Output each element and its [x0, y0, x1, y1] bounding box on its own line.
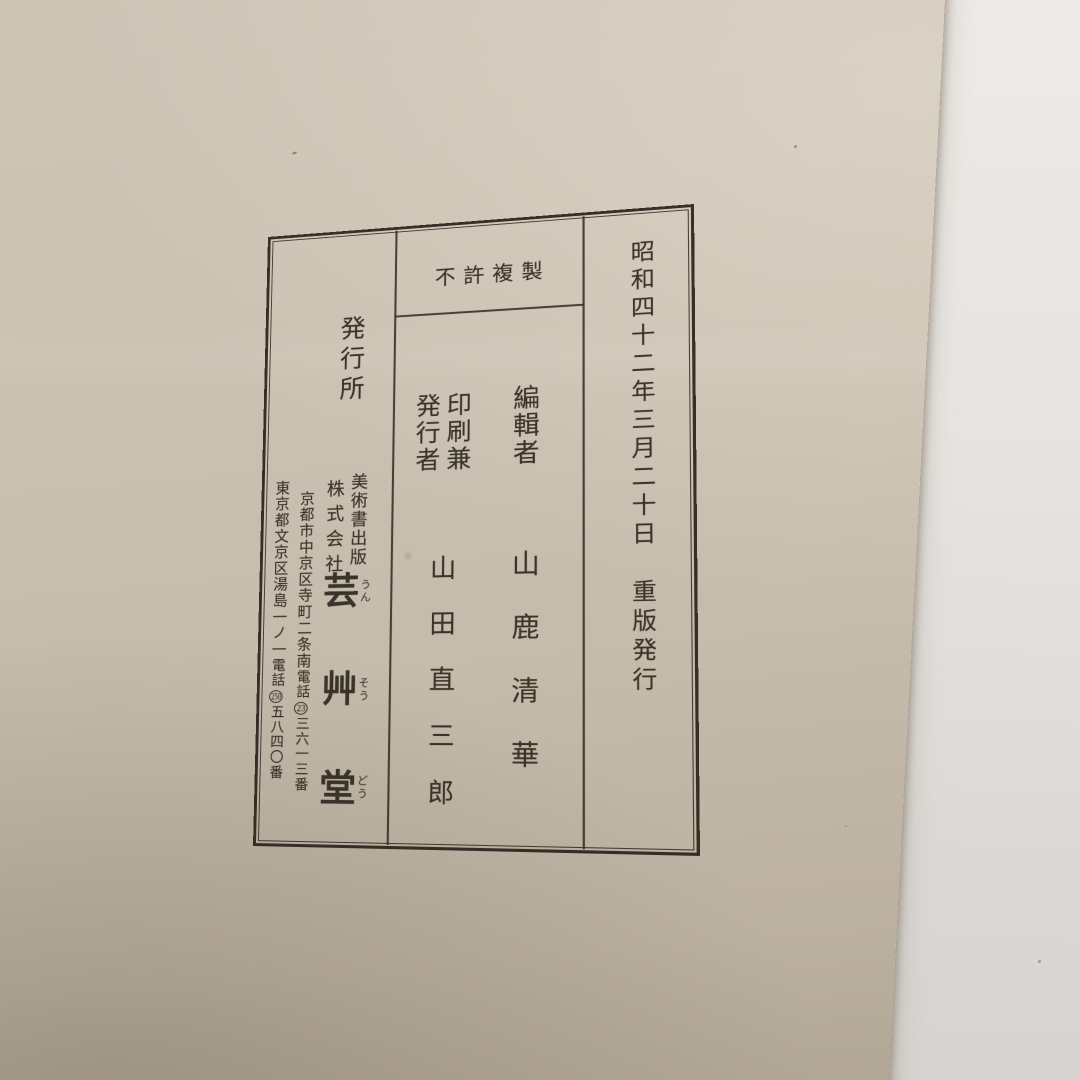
paper-speck [845, 825, 847, 827]
colophon-box: 昭和四十二年三月二十日 重版発行 不許複製 編輯者 山鹿清華 印刷兼 発行者 山… [253, 204, 700, 856]
printer-publisher-name: 山田直三郎 [424, 554, 453, 836]
tokyo-phone-label: 電話 [270, 658, 285, 688]
editor-name: 山鹿清華 [507, 549, 536, 805]
paper-speck [1038, 960, 1041, 963]
printer-label-line1: 印刷兼 [444, 391, 470, 473]
company-type: 株式会社 [323, 479, 343, 580]
facing-page-edge [886, 0, 1080, 1080]
furigana-do: どう [355, 775, 366, 801]
publisher-business-line: 美術書出版 [348, 473, 367, 568]
furigana-so: そう [357, 677, 368, 703]
paper-speck [292, 151, 297, 155]
kyoto-exchange-badge: 23 [294, 702, 308, 715]
kyoto-phone-number: 三六一三番 [292, 716, 308, 792]
printer-label-line2: 発行者 [413, 393, 439, 475]
kyoto-phone-label: 電話 [294, 669, 309, 699]
furigana-un: うん [359, 579, 370, 605]
paper-speck [794, 145, 797, 148]
divider-date-column [583, 216, 585, 849]
paper-speck [405, 553, 411, 559]
company-name: 芸艸堂 [313, 571, 355, 869]
publication-date-line: 昭和四十二年三月二十日 重版発行 [628, 239, 655, 696]
tokyo-phone-number: 五八四〇番 [267, 704, 283, 780]
copyright-notice-text: 不許複製 [435, 255, 551, 291]
tokyo-exchange-badge: 250 [269, 690, 283, 703]
editor-label: 編輯者 [510, 384, 537, 467]
publishing-house-label: 発行所 [337, 315, 364, 407]
book-page-photo: 昭和四十二年三月二十日 重版発行 不許複製 編輯者 山鹿清華 印刷兼 発行者 山… [0, 0, 1080, 1080]
